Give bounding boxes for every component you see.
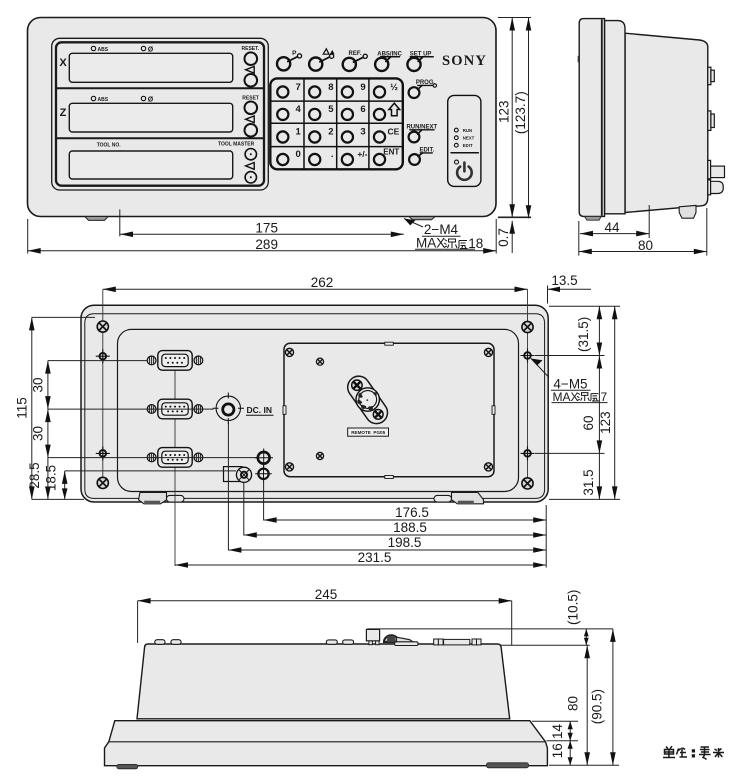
svg-text:3: 3 — [360, 127, 365, 138]
svg-text:(90.5): (90.5) — [590, 689, 605, 724]
svg-text:.: . — [331, 149, 334, 160]
svg-text:ABS: ABS — [98, 97, 109, 103]
svg-text:262: 262 — [311, 275, 334, 290]
svg-text:MAX: MAX — [416, 235, 445, 250]
svg-text:EDIT: EDIT — [463, 143, 473, 148]
svg-text:REF.: REF. — [348, 51, 361, 57]
svg-text:80: 80 — [566, 696, 581, 711]
svg-text:(10.5): (10.5) — [566, 590, 581, 625]
svg-text:231.5: 231.5 — [358, 550, 392, 565]
svg-text:TOOL NO.: TOOL NO. — [97, 143, 122, 149]
svg-text:ABS: ABS — [98, 47, 109, 53]
svg-text:18: 18 — [468, 236, 483, 251]
svg-text:PROG.: PROG. — [416, 80, 436, 86]
svg-text:80: 80 — [638, 238, 653, 253]
svg-text:CE: CE — [387, 127, 399, 137]
svg-text:7: 7 — [296, 82, 301, 93]
svg-text:ABS/INC: ABS/INC — [377, 51, 402, 57]
svg-text:18.5: 18.5 — [44, 465, 59, 491]
svg-text:MAX: MAX — [553, 390, 579, 404]
svg-text:X: X — [59, 57, 67, 69]
svg-text:9: 9 — [360, 82, 365, 93]
svg-text:44: 44 — [604, 220, 620, 235]
svg-text:123: 123 — [598, 411, 613, 434]
svg-text:60: 60 — [581, 415, 596, 430]
svg-text:SONY: SONY — [442, 53, 487, 69]
svg-text:+/-: +/- — [357, 149, 367, 159]
svg-text:Z: Z — [60, 107, 67, 119]
svg-text:Ø: Ø — [148, 47, 154, 54]
svg-text:TOOL MASTER: TOOL MASTER — [218, 142, 255, 148]
svg-text:Ø: Ø — [148, 97, 154, 104]
svg-text:DC. IN: DC. IN — [247, 405, 273, 415]
svg-text:(123.7): (123.7) — [513, 91, 528, 134]
svg-text:30: 30 — [30, 377, 45, 392]
svg-text:16: 16 — [550, 743, 565, 758]
svg-text:2: 2 — [328, 127, 333, 138]
svg-text:½: ½ — [390, 82, 398, 93]
svg-text:6: 6 — [360, 104, 365, 115]
svg-text:ENT: ENT — [383, 147, 399, 156]
svg-text:0: 0 — [296, 149, 301, 160]
svg-text:175: 175 — [255, 221, 278, 236]
svg-text:REMOTE PG05: REMOTE PG05 — [351, 430, 385, 435]
svg-text:EDIT.: EDIT. — [419, 148, 434, 154]
svg-text:(31.5): (31.5) — [576, 317, 591, 352]
svg-text:30: 30 — [30, 426, 45, 441]
svg-text:188.5: 188.5 — [393, 520, 427, 535]
svg-text:28.5: 28.5 — [27, 462, 42, 488]
svg-text:RESET.: RESET. — [242, 46, 260, 52]
svg-text:RUN/NEXT: RUN/NEXT — [406, 125, 437, 131]
svg-text:198.5: 198.5 — [388, 535, 422, 550]
svg-text:14: 14 — [550, 724, 565, 740]
svg-text:176.5: 176.5 — [395, 505, 429, 520]
svg-text:1: 1 — [296, 127, 302, 138]
svg-text:0.7: 0.7 — [496, 228, 511, 247]
svg-text:123: 123 — [497, 100, 512, 123]
svg-text:5: 5 — [328, 104, 334, 115]
svg-text:7: 7 — [601, 390, 608, 404]
svg-text:245: 245 — [315, 587, 338, 602]
svg-text:31.5: 31.5 — [581, 469, 596, 495]
svg-text:13.5: 13.5 — [551, 273, 577, 288]
svg-text:NEXT: NEXT — [463, 135, 475, 140]
svg-text:SET UP: SET UP — [410, 51, 432, 57]
svg-text:P: P — [292, 50, 297, 57]
svg-text:RUN: RUN — [463, 128, 472, 133]
svg-text:4: 4 — [296, 104, 302, 115]
svg-text:289: 289 — [255, 237, 278, 252]
svg-text:8: 8 — [328, 82, 333, 93]
svg-text:115: 115 — [15, 397, 30, 419]
